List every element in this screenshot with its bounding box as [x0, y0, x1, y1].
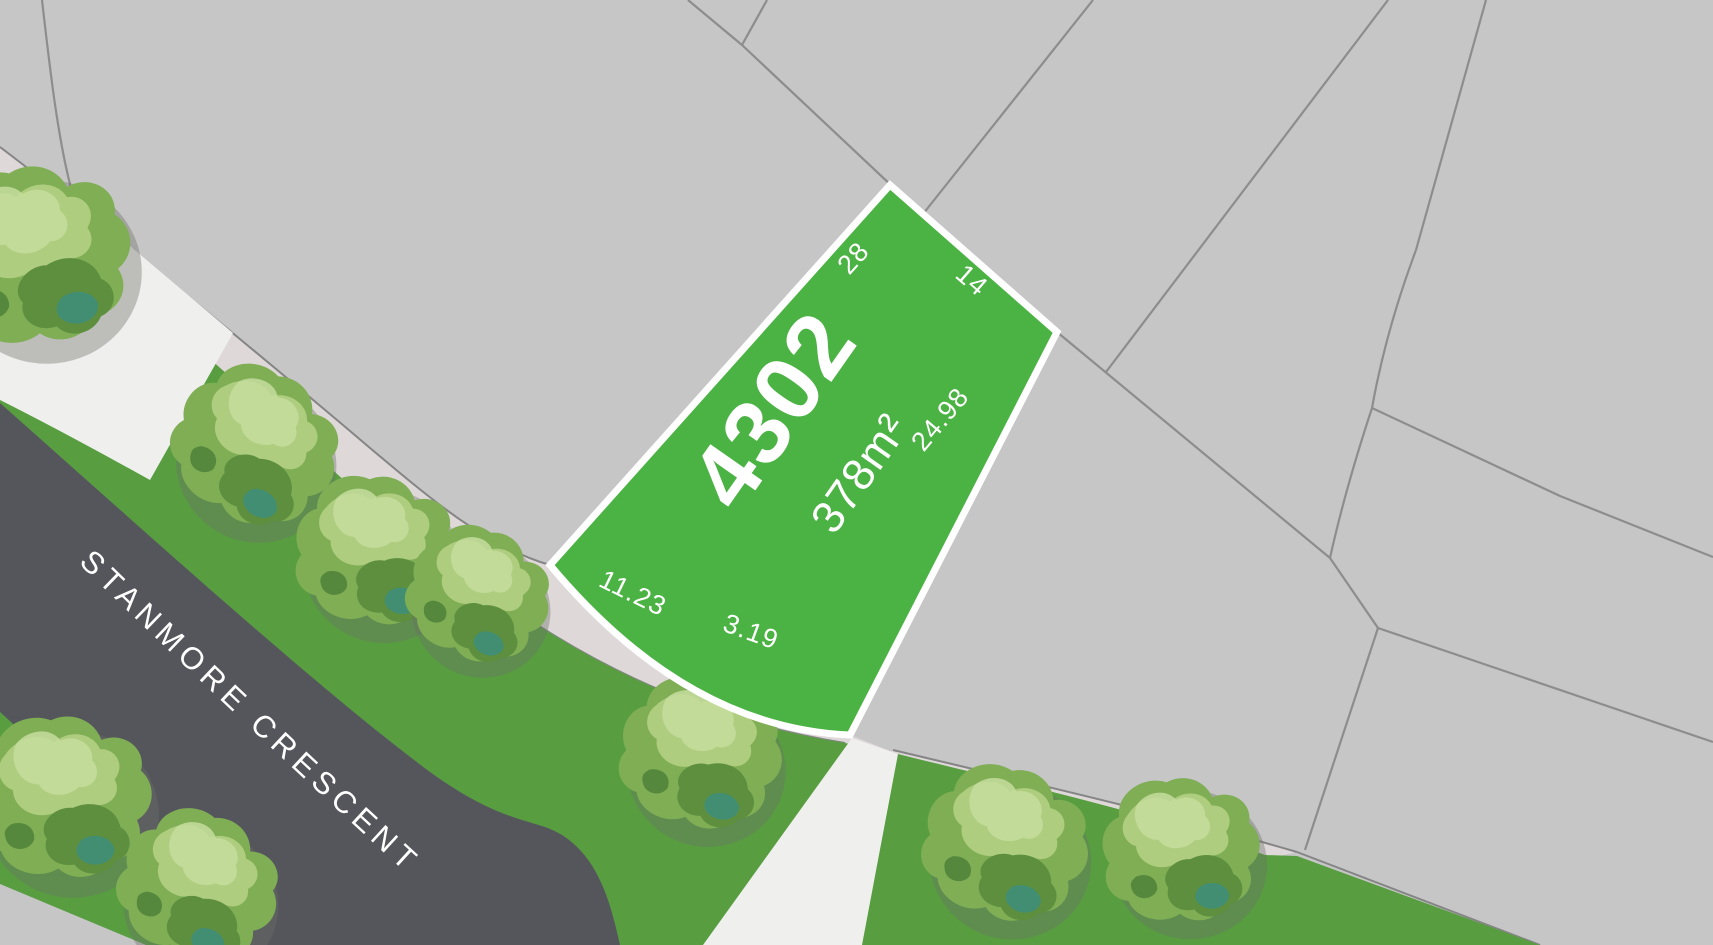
map-canvas: 4302 378m² 28 14 24.98 11.23 3.19 STANMO… — [0, 0, 1713, 945]
estate-map: 4302 378m² 28 14 24.98 11.23 3.19 STANMO… — [0, 0, 1713, 945]
